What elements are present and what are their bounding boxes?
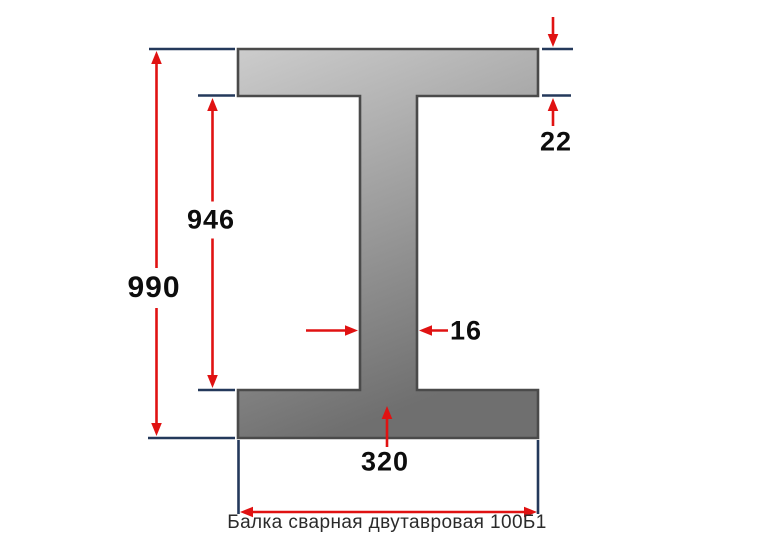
drawing-canvas: 990 946 22 16 320 Балка сварная двутавро… (0, 0, 773, 546)
dim-total-height-arrow (151, 51, 162, 436)
flange-thickness-label: 22 (540, 129, 572, 156)
ibeam-outline-group (238, 49, 538, 438)
beam-caption: Балка сварная двутавровая 100Б1 (227, 512, 547, 534)
ibeam-shape (238, 49, 538, 438)
web-height-label: 946 (177, 202, 245, 239)
total-height-label: 990 (117, 268, 190, 308)
dim-flange-thickness-arrows (548, 17, 559, 126)
dim-web-height-arrow (207, 98, 218, 388)
web-thickness-label: 16 (450, 318, 482, 345)
flange-width-label: 320 (361, 449, 409, 476)
